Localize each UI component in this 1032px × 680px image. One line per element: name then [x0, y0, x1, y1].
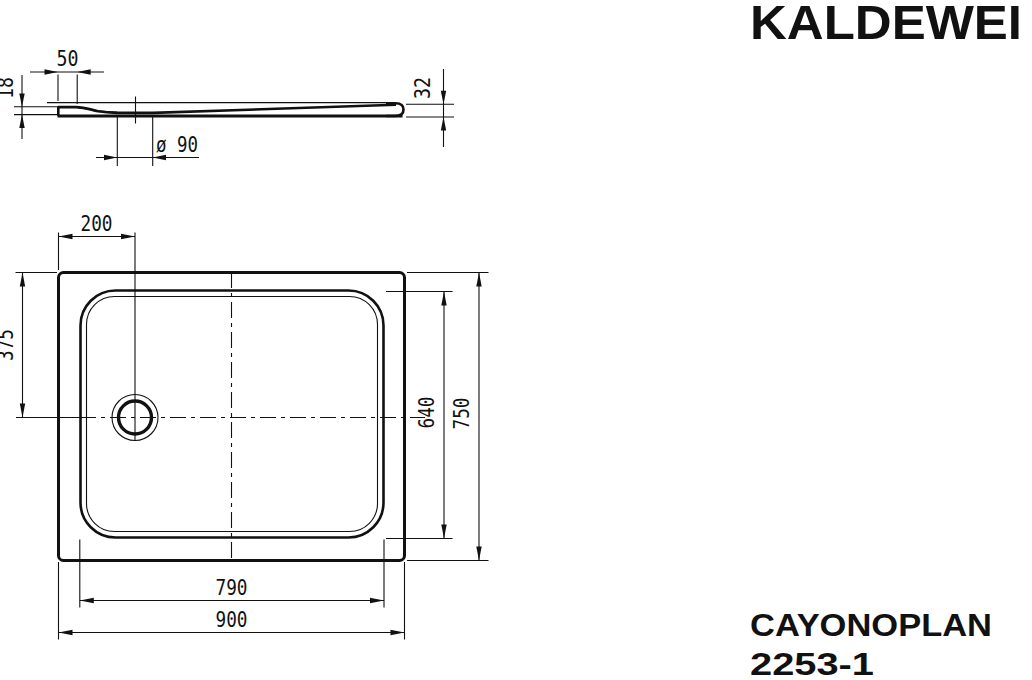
section-view: 50 18 32 ø 90 — [0, 47, 454, 166]
dim-label-18: 18 — [0, 77, 18, 99]
arrow-top — [441, 91, 446, 104]
arrow-bottom — [20, 404, 25, 418]
ext-line — [59, 233, 136, 442]
arrow-top — [441, 292, 446, 306]
arrow-left — [59, 630, 73, 635]
arrow-right — [370, 598, 384, 603]
dim-50: 50 — [30, 47, 104, 104]
arrow-right — [121, 234, 135, 239]
title-block: KALDEWEI CAYONOPLAN 2253-1 — [750, 0, 1022, 680]
arrow-bottom — [19, 115, 24, 128]
arrow-left — [80, 598, 94, 603]
dim-18: 18 — [0, 75, 57, 139]
arrow-left — [59, 234, 73, 239]
drawing-sheet: 50 18 32 ø 90 — [0, 0, 1032, 680]
product-model: 2253-1 — [750, 646, 874, 680]
arrow-top — [20, 273, 25, 287]
arrow-bottom — [441, 525, 446, 539]
section-outline — [58, 105, 396, 116]
arrow-bottom — [441, 117, 446, 130]
dim-label-790: 790 — [216, 576, 248, 600]
dim-32: 32 — [406, 69, 454, 147]
dim-label-drain-diameter: ø 90 — [156, 133, 198, 157]
arrow-left — [104, 155, 117, 160]
ext-line — [406, 104, 454, 117]
dim-label-375: 375 — [0, 329, 18, 361]
dim-375: 375 — [0, 273, 57, 418]
ext-line — [117, 117, 152, 167]
ext-line — [58, 75, 77, 105]
arrow-right — [391, 630, 405, 635]
arrow-top — [19, 94, 24, 107]
arrow-bottom — [476, 547, 481, 561]
dim-640: 640 — [386, 292, 453, 539]
plan-view: 200 375 640 750 — [0, 212, 489, 640]
technical-drawing: 50 18 32 ø 90 — [0, 0, 1032, 680]
arrow-top — [476, 273, 481, 287]
dim-label-200: 200 — [81, 212, 113, 236]
ext-line — [14, 107, 57, 115]
dim-label-50: 50 — [57, 47, 79, 71]
arrow-right — [77, 69, 91, 74]
dim-label-32: 32 — [411, 77, 435, 99]
product-series: CAYONOPLAN — [750, 607, 992, 643]
brand-logo: KALDEWEI — [750, 0, 1022, 49]
dim-label-640: 640 — [415, 397, 439, 429]
dim-label-750: 750 — [450, 398, 474, 430]
dim-label-900: 900 — [216, 608, 248, 632]
dim-drain-diameter: ø 90 — [96, 117, 199, 167]
